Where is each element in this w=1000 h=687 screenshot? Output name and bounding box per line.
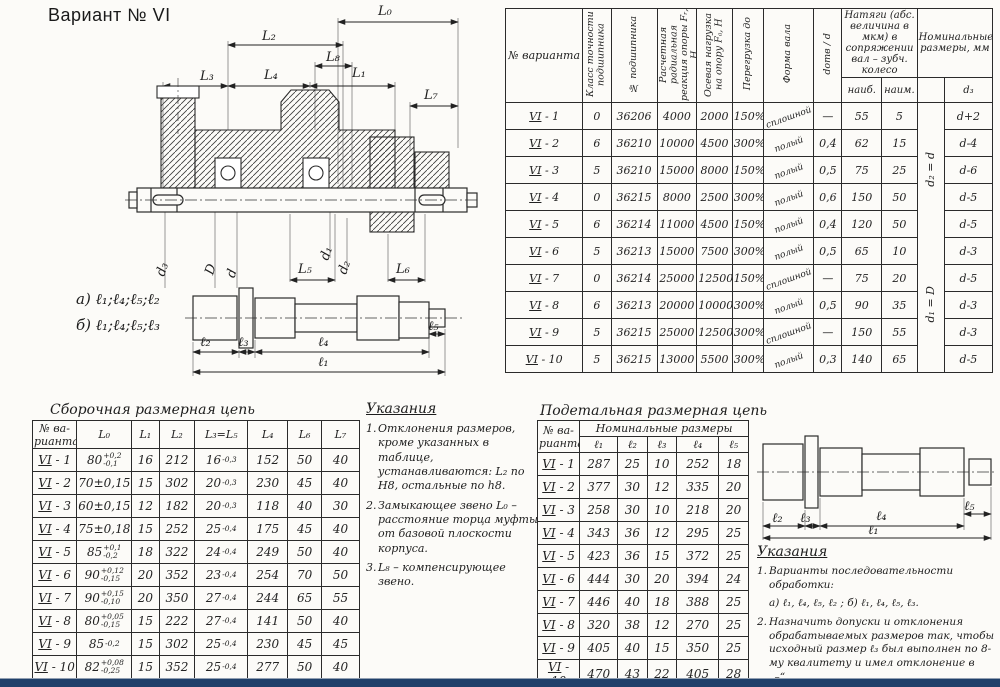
cell: 27-0,4 [195,610,248,633]
dim-label-L1: L₁ [352,66,366,81]
cell: 0 [583,265,611,292]
table-row: VI - 4343361229525 [538,522,749,545]
cell: VI - 2 [506,130,583,157]
cell: 50 [288,656,322,679]
cell: полый [764,238,814,265]
cell: d-3 [944,319,992,346]
cell: 27-0,4 [195,587,248,610]
cell: 222 [159,610,195,633]
cell: VI - 9 [506,319,583,346]
cell: d-5 [944,346,992,373]
cell: 5 [882,103,918,130]
cell: 10 [647,499,677,522]
cell: 244 [248,587,288,610]
cell: VI - 4 [506,184,583,211]
dshaft-l5: ℓ₅ [964,498,975,514]
note-item: а) ℓ₁, ℓ₄, ℓ₅, ℓ₂ ; б) ℓ₁, ℓ₄, ℓ₅, ℓ₃. [757,597,995,611]
table-row: VI - 9405401535025 [538,637,749,660]
cell: 75 [842,157,882,184]
dshaft-l1: ℓ₁ [868,522,879,538]
cell: 446 [580,591,618,614]
dim-label-L7: L₇ [424,88,438,103]
cell: 0 [583,103,611,130]
bearing-table: № варианта Класс точности подшипника № п… [505,8,993,373]
cell: 36214 [611,211,657,238]
cell: 152 [248,449,288,472]
cell: 25000 [657,265,697,292]
cell: 0 [583,184,611,211]
cell: 75 [842,265,882,292]
table-row: VI - 585+0,1-0,21832224-0,42495040 [33,541,360,564]
cell: 75±0,18 [77,518,132,541]
table-row: VI - 2377301233520 [538,476,749,499]
cell: 8000 [697,157,733,184]
cell: 230 [248,472,288,495]
cell: полый [764,157,814,184]
col-header-shaft-form: Форма вала [764,9,814,103]
notes-left-title: Указания [366,400,538,418]
assembly-drawing [25,2,510,394]
cell: 80+0,2-0,1 [77,449,132,472]
cell: 45 [288,472,322,495]
detail-chain-title: Подетальная размерная цепь [540,403,767,419]
cell: 36213 [611,292,657,319]
cell: 343 [580,522,618,545]
cell: 6 [583,211,611,238]
cell: 12500 [697,319,733,346]
cell: d+2 [944,103,992,130]
cell: 18 [719,453,749,476]
cell: 4500 [697,130,733,157]
cell: d-5 [944,211,992,238]
cell: 16-0,3 [195,449,248,472]
cell: VI - 9 [33,633,77,656]
cell: 150 [842,184,882,211]
cell: 60±0,15 [77,495,132,518]
dim-label-L0: L₀ [378,4,392,19]
cell: 0,3 [814,346,842,373]
cell: сплошной [764,265,814,292]
col-header-radial-load: Расчетная радиальная реакция опоры Fᵣ, Н [657,9,697,103]
cell: VI - 6 [538,568,580,591]
cell: 10000 [657,130,697,157]
cell: 150% [732,265,763,292]
cell: 300% [732,292,763,319]
d-equality-cell: d₂ = dd₁ = D [917,103,944,373]
dc-header-variant: № ва-рианта [538,421,580,453]
cell: 23-0,4 [195,564,248,587]
cell: 249 [248,541,288,564]
cell: 322 [159,541,195,564]
cell: 50 [288,541,322,564]
cell: 423 [580,545,618,568]
table-row: VI - 1287251025218 [538,453,749,476]
cell: VI - 9 [538,637,580,660]
cell: 15 [132,472,159,495]
ac-header-L3L5: L₃=L₅ [195,421,248,449]
ac-header-variant: № ва-рианта [33,421,77,449]
cell: 25-0,4 [195,518,248,541]
cell: 40 [321,449,359,472]
cell: 40 [618,637,648,660]
cell: 20-0,3 [195,472,248,495]
cell: 62 [842,130,882,157]
cell: 50 [882,184,918,211]
table-row: VI - 7446401838825 [538,591,749,614]
cell: d-4 [944,130,992,157]
cell: 50 [882,211,918,238]
dc-header-l5: ℓ₅ [719,437,749,453]
table-row: VI - 1082+0,08-0,251535225-0,42775040 [33,656,360,679]
cell: 150% [732,103,763,130]
dc-header-l3: ℓ₃ [647,437,677,453]
cell: 15 [647,637,677,660]
cell: 25000 [657,319,697,346]
table-row: VI - 690+0,12-0,152035223-0,42547050 [33,564,360,587]
window-edge-bar [0,678,1000,687]
cell: VI - 1 [33,449,77,472]
detail-chain-table: № ва-рианта Номинальные размеры ℓ₁ ℓ₂ ℓ₃… [537,420,749,687]
col-header-bearing-no: № подшипника [611,9,657,103]
note-item: 2.Назначить допуски и отклонения обрабат… [757,616,995,684]
cell: 15000 [657,157,697,184]
cell: 36210 [611,157,657,184]
cell: 302 [159,633,195,656]
cell: 45 [288,518,322,541]
table-row: VI - 270±0,151530220-0,32304540 [33,472,360,495]
col-header-d3: d₃ [944,78,992,103]
cell: 182 [159,495,195,518]
cell: 20 [647,568,677,591]
cell: 36210 [611,130,657,157]
cell: 20 [132,564,159,587]
cell: 15 [647,545,677,568]
cell: 0,6 [814,184,842,211]
cell: 36215 [611,346,657,373]
cell: 40 [321,518,359,541]
cell: — [814,319,842,346]
cell: 252 [159,518,195,541]
cell: 24 [719,568,749,591]
cell: 120 [842,211,882,238]
cell: d-3 [944,292,992,319]
cell: 35 [882,292,918,319]
notes-left: Указания 1.Отклонения размеров, кроме ук… [366,400,538,594]
note-item: 1.Варианты последовательности обработки: [757,565,995,592]
cell: VI - 7 [506,265,583,292]
cell: 36214 [611,265,657,292]
cell: VI - 7 [33,587,77,610]
cell: 12 [647,614,677,637]
cell: 20 [719,476,749,499]
cell: 25 [618,453,648,476]
dim-label-L2: L₂ [262,29,276,44]
col-header-d-equality [917,78,944,103]
dshaft-l3: ℓ₃ [800,510,811,526]
cell: 295 [677,522,719,545]
cell: 15 [132,656,159,679]
cell: 30 [618,476,648,499]
cell: 350 [677,637,719,660]
dim-label-L8: L₈ [326,50,340,65]
cell: 20000 [657,292,697,319]
cell: 90+0,15-0,10 [77,587,132,610]
dc-header-group: Номинальные размеры [580,421,749,437]
cell: 10 [882,238,918,265]
cell: 10 [647,453,677,476]
cell: 55 [882,319,918,346]
cell: 36215 [611,184,657,211]
dc-header-l2: ℓ₂ [618,437,648,453]
col-header-axial-load: Осевая нагрузка на опору Fₐ, Н [697,9,733,103]
cell: 18 [647,591,677,614]
cell: 0,5 [814,238,842,265]
cell: 85+0,1-0,2 [77,541,132,564]
cell: 65 [842,238,882,265]
table-row: VI - 3258301021820 [538,499,749,522]
cell: 218 [677,499,719,522]
cell: 15 [882,130,918,157]
cell: VI - 10 [33,656,77,679]
cell: 277 [248,656,288,679]
cell: 30 [321,495,359,518]
table-row: VI - 790+0,15-0,102035027-0,42446555 [33,587,360,610]
cell: 4500 [697,211,733,238]
notes-right-title: Указания [757,543,995,561]
cell: 150 [842,319,882,346]
table-row: VI - 103620640002000150%сплошной—555d₂ =… [506,103,993,130]
cell: 2000 [697,103,733,130]
dc-header-l4: ℓ₄ [677,437,719,453]
dim-label-L5: L₅ [298,262,312,277]
cell: VI - 4 [33,518,77,541]
cell: сплошной [764,103,814,130]
cell: 65 [288,587,322,610]
cell: 10000 [697,292,733,319]
cell: сплошной [764,319,814,346]
cell: 300% [732,346,763,373]
cell: 85-0,2 [77,633,132,656]
cell: 80+0,05-0,15 [77,610,132,633]
cell: 40 [321,610,359,633]
cell: VI - 6 [506,238,583,265]
cell: 20 [882,265,918,292]
cell: d-3 [944,238,992,265]
cell: 25 [882,157,918,184]
cell: 150% [732,157,763,184]
dim-label-L4: L₄ [264,68,278,83]
table-row: VI - 8320381227025 [538,614,749,637]
cell: 20 [719,499,749,522]
cell: VI - 2 [538,476,580,499]
cell: VI - 3 [33,495,77,518]
cell: 258 [580,499,618,522]
cell: полый [764,211,814,238]
cell: 12500 [697,265,733,292]
ac-header-L6: L₆ [288,421,322,449]
cell: 82+0,08-0,25 [77,656,132,679]
cell: 0,5 [814,157,842,184]
table-row: VI - 180+0,2-0,11621216-0,31525040 [33,449,360,472]
col-header-accuracy: Класс точности подшипника [583,9,611,103]
cell: 50 [288,449,322,472]
cell: 50 [321,564,359,587]
cell: 0,5 [814,292,842,319]
note-item: 1.Отклонения размеров, кроме указанных в… [366,422,538,493]
cell: 5 [583,319,611,346]
cell: 6 [583,292,611,319]
cell: 25-0,4 [195,633,248,656]
cell: 372 [677,545,719,568]
cell: 4000 [657,103,697,130]
cell: 15 [132,610,159,633]
cell: 15 [132,633,159,656]
ac-header-L0: L₀ [77,421,132,449]
cell: 12 [132,495,159,518]
shaft-l3: ℓ₃ [238,334,249,350]
cell: 50 [288,610,322,633]
table-row: VI - 360±0,151218220-0,31184030 [33,495,360,518]
cell: 5500 [697,346,733,373]
shaft-l5: ℓ₅ [428,318,439,334]
cell: 300% [732,319,763,346]
cell: VI - 1 [506,103,583,130]
cell: 25 [719,637,749,660]
cell: 254 [248,564,288,587]
cell: 36215 [611,319,657,346]
dim-label-L3: L₃ [200,69,214,84]
cell: 12 [647,522,677,545]
cell: VI - 5 [33,541,77,564]
cell: 118 [248,495,288,518]
notes-right: Указания 1.Варианты последовательности о… [757,543,995,687]
cell: 40 [618,591,648,614]
cell: 150% [732,211,763,238]
cell: 40 [321,656,359,679]
cell: 40 [321,541,359,564]
cell: 90+0,12-0,15 [77,564,132,587]
table-row: VI - 985-0,21530225-0,42304545 [33,633,360,656]
cell: 335 [677,476,719,499]
cell: VI - 8 [33,610,77,633]
cell: 45 [288,633,322,656]
cell: 36213 [611,238,657,265]
cell: 0,4 [814,130,842,157]
table-row: VI - 880+0,05-0,151522227-0,41415040 [33,610,360,633]
cell: 270 [677,614,719,637]
cell: 36206 [611,103,657,130]
assembly-chain-title: Сборочная размерная цепь [50,402,255,418]
cell: полый [764,346,814,373]
cell: VI - 3 [538,499,580,522]
table-row: VI - 475±0,181525225-0,41754540 [33,518,360,541]
cell: — [814,103,842,130]
cell: 377 [580,476,618,499]
dshaft-l2: ℓ₂ [772,510,783,526]
cell: d-5 [944,184,992,211]
cell: 12 [647,476,677,499]
cell: полый [764,184,814,211]
cell: 36 [618,545,648,568]
cell: VI - 3 [506,157,583,184]
col-header-max: наиб. [842,78,882,103]
cell: 300% [732,184,763,211]
cell: 0,4 [814,211,842,238]
col-header-variant: № варианта [506,9,583,103]
cell: 30 [618,568,648,591]
cell: VI - 5 [506,211,583,238]
cell: полый [764,130,814,157]
cell: 38 [618,614,648,637]
shaft-l2: ℓ₂ [200,334,211,350]
cell: 405 [580,637,618,660]
dc-header-l1: ℓ₁ [580,437,618,453]
cell: 2500 [697,184,733,211]
cell: 65 [882,346,918,373]
cell: 25 [719,522,749,545]
cell: 444 [580,568,618,591]
cell: 55 [321,587,359,610]
cell: 352 [159,656,195,679]
cell: VI - 10 [506,346,583,373]
cell: 45 [321,633,359,656]
cell: 302 [159,472,195,495]
note-item: 2.Замыкающее звено L₀ – расстояние торца… [366,499,538,556]
cell: полый [764,292,814,319]
assembly-chain-table: № ва-рианта L₀ L₁ L₂ L₃=L₅ L₄ L₆ L₇ VI -… [32,420,360,679]
cell: 25 [719,614,749,637]
cell: 8000 [657,184,697,211]
cell: 11000 [657,211,697,238]
cell: 320 [580,614,618,637]
cell: 352 [159,564,195,587]
cell: 394 [677,568,719,591]
cell: d-6 [944,157,992,184]
ac-header-L4: L₄ [248,421,288,449]
cell: 7500 [697,238,733,265]
cell: 16 [132,449,159,472]
cell: 388 [677,591,719,614]
cell: 55 [842,103,882,130]
ac-header-L1: L₁ [132,421,159,449]
cell: 70±0,15 [77,472,132,495]
cell: 18 [132,541,159,564]
cell: 140 [842,346,882,373]
group-header-nominal: Номинальные размеры, мм [917,9,992,78]
table-row: VI - 6444302039424 [538,568,749,591]
shaft-l4: ℓ₄ [318,334,329,350]
cell: 20 [132,587,159,610]
cell: VI - 2 [33,472,77,495]
col-header-min: наим. [882,78,918,103]
cell: 141 [248,610,288,633]
table-row: VI - 5423361537225 [538,545,749,568]
shaft-l1: ℓ₁ [318,354,329,370]
dim-label-L6: L₆ [396,262,410,277]
cell: 5 [583,238,611,265]
cell: 5 [583,157,611,184]
col-header-overload: Перегрузка до [732,9,763,103]
cell: — [814,265,842,292]
cell: 20-0,3 [195,495,248,518]
cell: 287 [580,453,618,476]
sequence-a: а) ℓ₁;ℓ₄;ℓ₅;ℓ₂ [76,290,160,309]
document-page: Вариант № VI [0,0,1000,687]
cell: 30 [618,499,648,522]
cell: VI - 8 [538,614,580,637]
cell: 15 [132,518,159,541]
cell: d-5 [944,265,992,292]
